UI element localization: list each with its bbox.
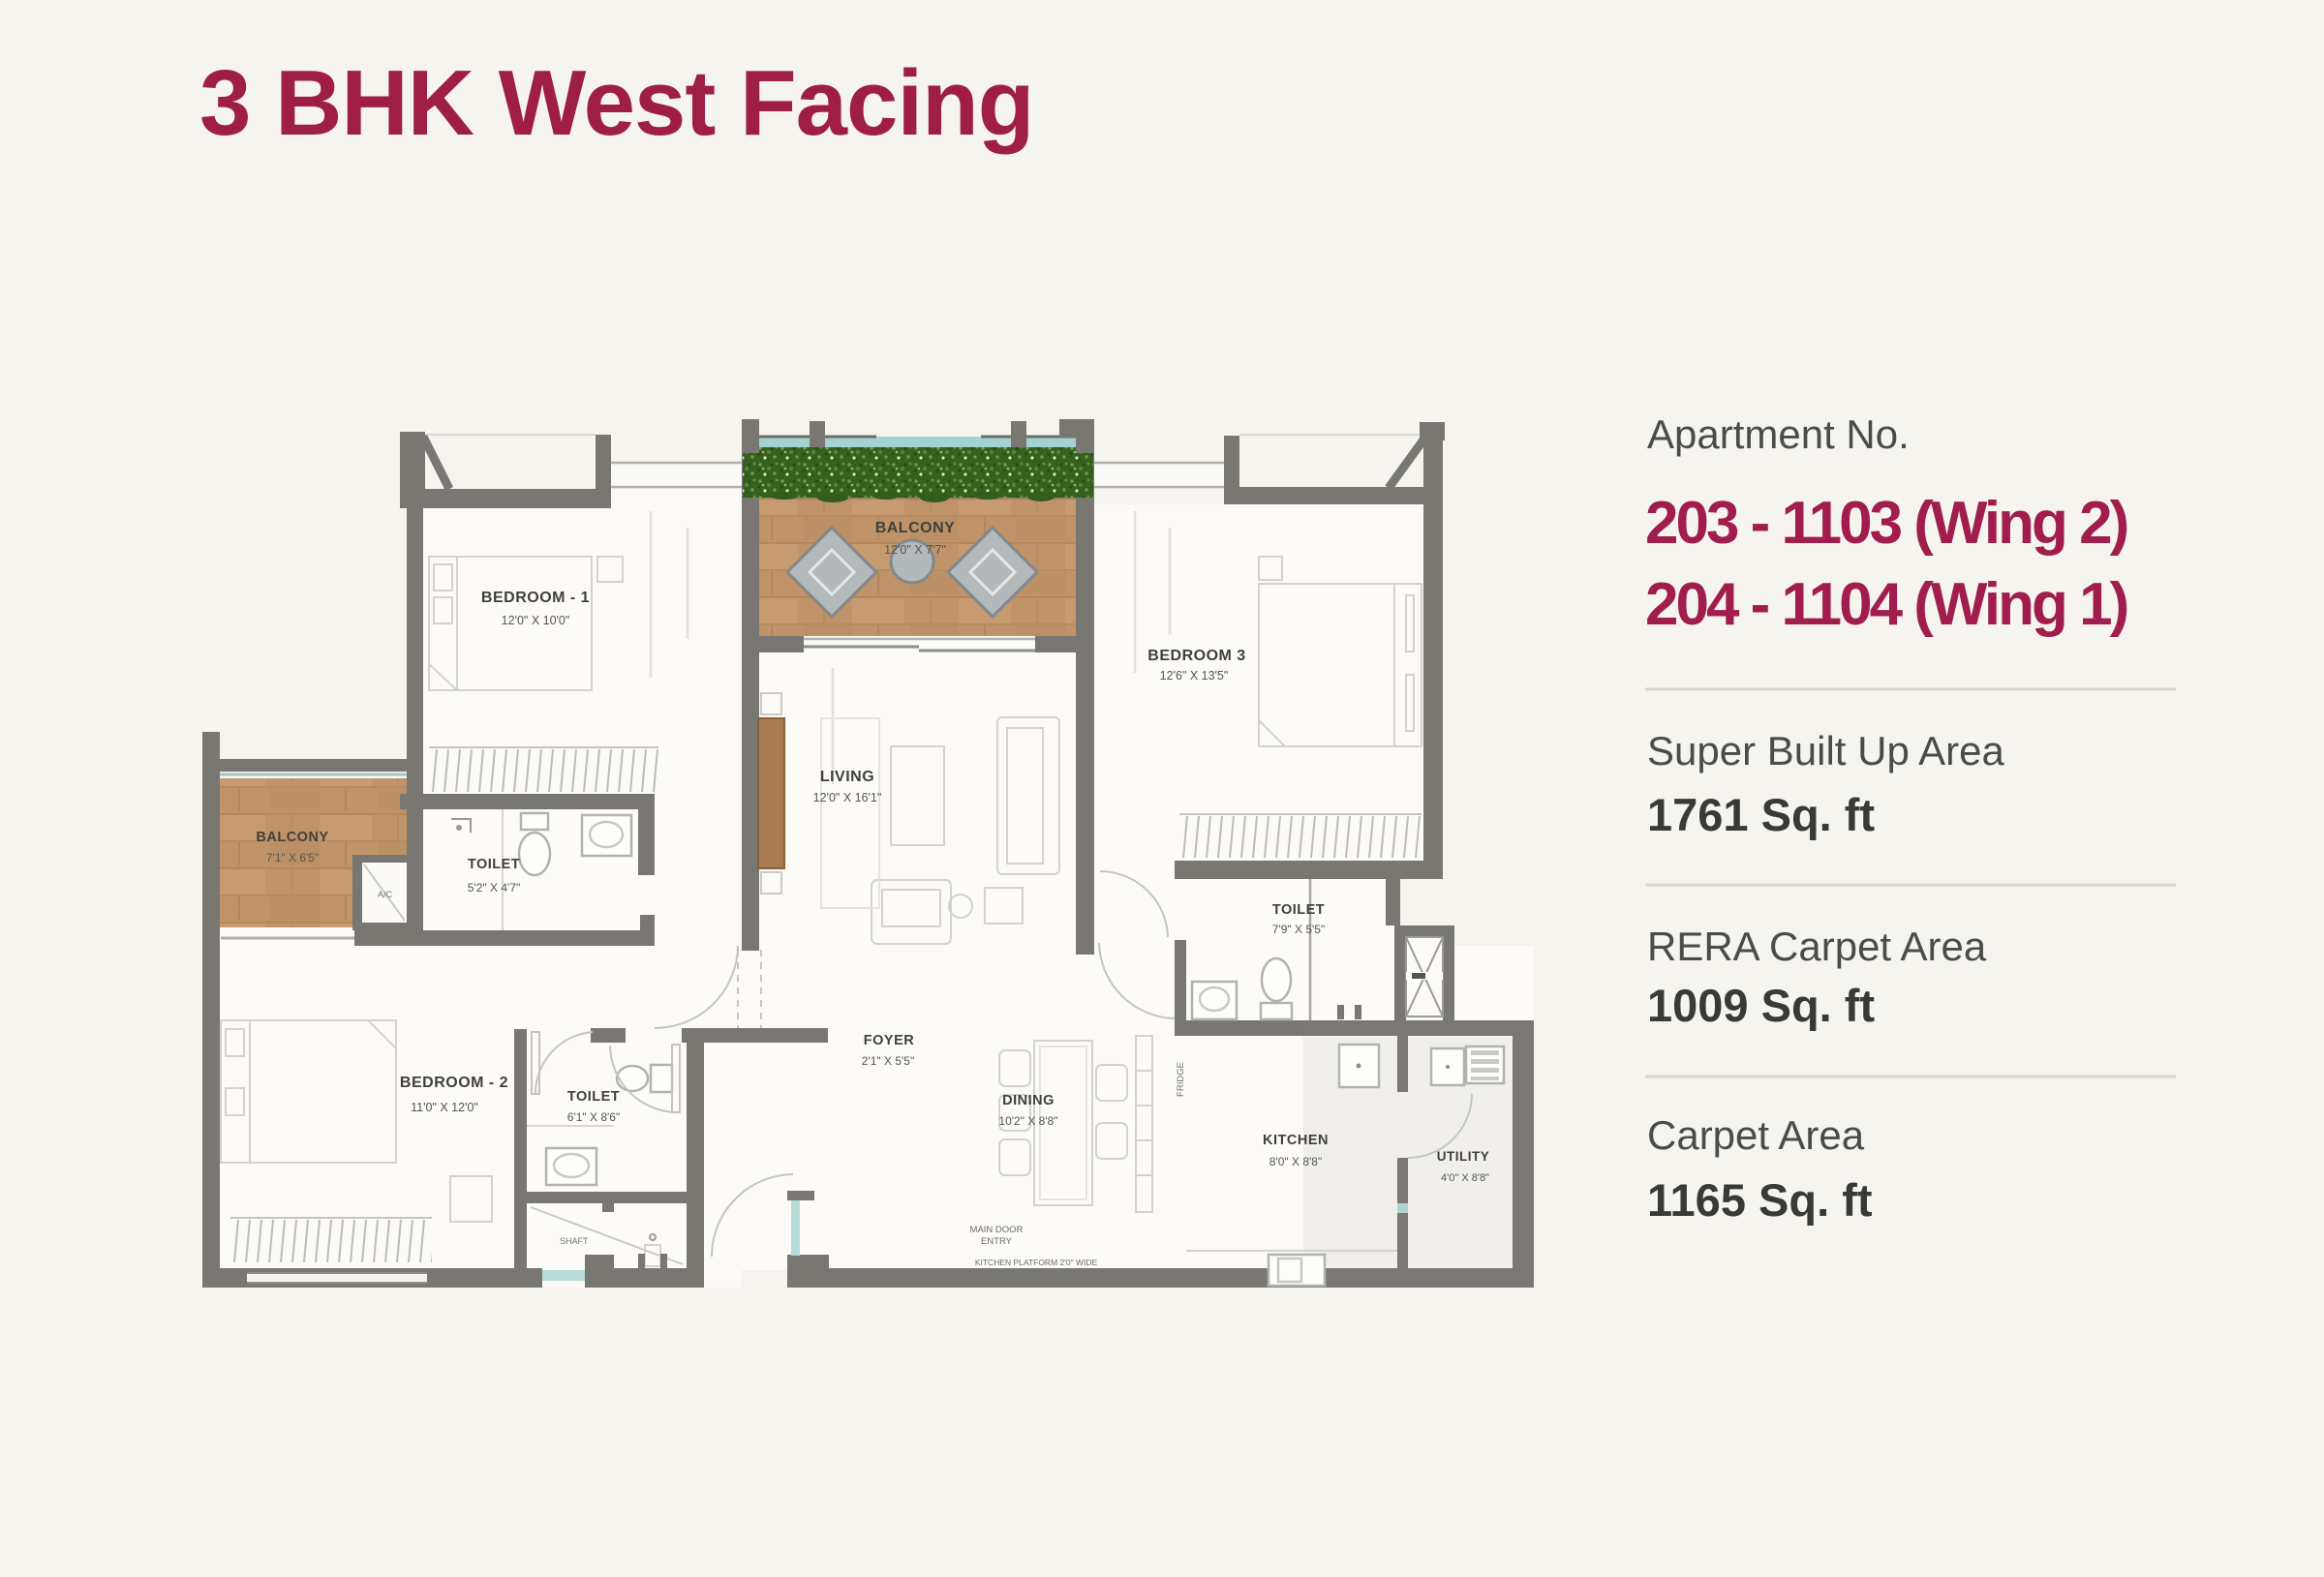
svg-text:UTILITY: UTILITY [1437, 1149, 1490, 1164]
svg-text:12'0" X 7'7": 12'0" X 7'7" [884, 543, 946, 557]
svg-text:8'0" X 8'8": 8'0" X 8'8" [1269, 1155, 1322, 1168]
svg-text:FRIDGE: FRIDGE [1176, 1062, 1186, 1097]
svg-text:FOYER: FOYER [864, 1033, 914, 1048]
svg-text:12'0" X 10'0": 12'0" X 10'0" [502, 614, 570, 627]
svg-text:5'2" X 4'7": 5'2" X 4'7" [468, 881, 520, 895]
svg-text:KITCHEN: KITCHEN [1263, 1133, 1329, 1148]
svg-text:12'0" X 16'1": 12'0" X 16'1" [813, 791, 882, 804]
svg-text:203 - 1103 (Wing 2): 203 - 1103 (Wing 2) [1645, 490, 2127, 557]
svg-text:7'9" X 5'5": 7'9" X 5'5" [1272, 923, 1325, 936]
svg-text:BEDROOM 3: BEDROOM 3 [1147, 648, 1245, 664]
svg-text:Apartment No.: Apartment No. [1647, 411, 1910, 457]
svg-text:ENTRY: ENTRY [981, 1236, 1013, 1247]
svg-text:MAIN DOOR: MAIN DOOR [970, 1225, 1024, 1235]
svg-text:6'1" X 8'6": 6'1" X 8'6" [567, 1110, 620, 1124]
svg-text:1165 Sq. ft: 1165 Sq. ft [1647, 1174, 1873, 1226]
svg-text:10'2" X 8'8": 10'2" X 8'8" [998, 1114, 1057, 1128]
svg-text:BALCONY: BALCONY [256, 830, 328, 845]
svg-text:LIVING: LIVING [820, 769, 874, 785]
svg-text:3 BHK West Facing: 3 BHK West Facing [199, 51, 1033, 155]
svg-text:KITCHEN PLATFORM 2'0" WIDE: KITCHEN PLATFORM 2'0" WIDE [975, 1258, 1098, 1267]
svg-text:4'0" X 8'8": 4'0" X 8'8" [1441, 1172, 1489, 1184]
svg-text:A/C: A/C [378, 890, 393, 899]
svg-text:BALCONY: BALCONY [875, 520, 956, 536]
svg-text:BEDROOM - 1: BEDROOM - 1 [481, 590, 590, 606]
svg-text:TOILET: TOILET [468, 857, 520, 872]
svg-text:7'1" X 6'5": 7'1" X 6'5" [266, 851, 319, 864]
svg-text:12'6" X 13'5": 12'6" X 13'5" [1160, 669, 1229, 682]
svg-text:Carpet Area: Carpet Area [1647, 1112, 1865, 1158]
svg-text:BEDROOM - 2: BEDROOM - 2 [400, 1075, 508, 1091]
svg-text:RERA Carpet Area: RERA Carpet Area [1647, 924, 1987, 969]
svg-text:1761 Sq. ft: 1761 Sq. ft [1647, 789, 1875, 840]
svg-text:DINING: DINING [1002, 1093, 1055, 1108]
svg-text:Super Built Up Area: Super Built Up Area [1647, 728, 2005, 773]
svg-text:2'1" X 5'5": 2'1" X 5'5" [862, 1054, 914, 1068]
svg-text:11'0" X 12'0": 11'0" X 12'0" [411, 1101, 478, 1114]
svg-text:SHAFT: SHAFT [560, 1236, 589, 1246]
svg-text:204 - 1104 (Wing 1): 204 - 1104 (Wing 1) [1645, 571, 2127, 638]
svg-text:TOILET: TOILET [567, 1089, 620, 1105]
svg-text:TOILET: TOILET [1272, 902, 1325, 918]
svg-text:1009 Sq. ft: 1009 Sq. ft [1647, 980, 1875, 1031]
